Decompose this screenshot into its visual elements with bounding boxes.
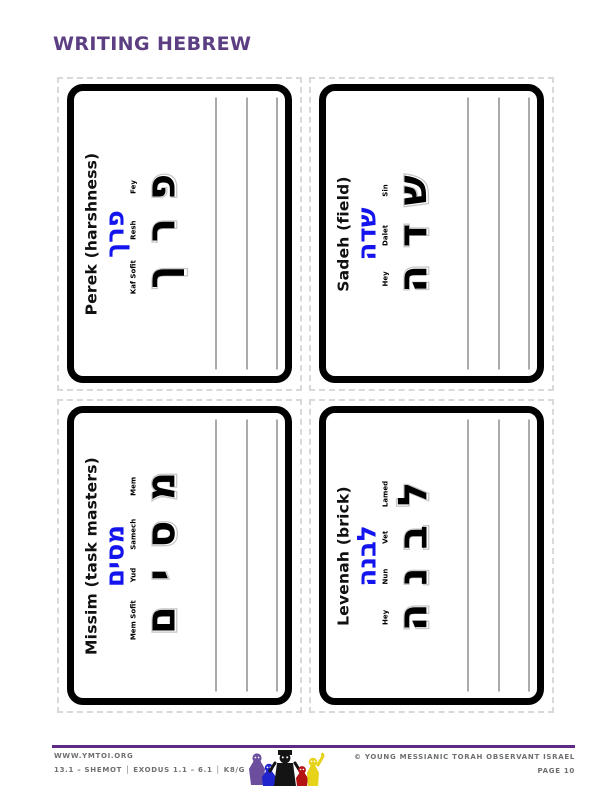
practice-line	[498, 419, 499, 691]
tracing-letters-row: Mem Sofit םם Yud יי Samech סס Mem ממ	[129, 471, 184, 639]
ymtoi-children-logo-icon	[245, 747, 325, 787]
hebrew-word: לבנה	[354, 525, 381, 586]
flashcard-perek: Perek (harshness) פרך Kaf Sofit ךך Resh …	[67, 84, 292, 383]
letter-column: Nun ננ	[381, 567, 436, 585]
footer-lesson-info: 13.1 – SHEMOT │ EXODUS 1.1 – 6.1 │ K8/G	[54, 766, 245, 774]
tracing-letter: יי	[139, 569, 184, 581]
flashcard-cut-area-levenah: Levenah (brick) לבנה Hey הה Nun ננ Vet ב…	[309, 399, 554, 713]
tracing-letter: סס	[139, 520, 184, 547]
tracing-letter: שש	[391, 175, 436, 205]
flashcard-cut-area-sadeh: Sadeh (field) שדה Hey הה Dalet דד Sin שש	[309, 77, 554, 391]
letter-column: Mem Sofit םם	[129, 600, 184, 640]
practice-line	[246, 419, 247, 691]
practice-line	[467, 419, 468, 691]
tracing-letter: דד	[391, 223, 436, 247]
practice-line	[276, 419, 277, 691]
practice-line	[528, 419, 529, 691]
card-label: Levenah (brick)	[334, 486, 352, 626]
practice-line	[276, 97, 277, 369]
letter-column: Lamed לל	[381, 480, 436, 506]
tracing-letters-row: Kaf Sofit ךך Resh רר Fey פפ	[129, 173, 184, 293]
letter-column: Fey פפ	[129, 173, 184, 199]
logo-figure-yellow	[307, 753, 324, 786]
letter-column: Resh רר	[129, 218, 184, 242]
practice-line	[215, 419, 216, 691]
flashcard-levenah: Levenah (brick) לבנה Hey הה Nun ננ Vet ב…	[319, 406, 544, 705]
letter-column: Mem ממ	[129, 471, 184, 500]
flashcard-sadeh: Sadeh (field) שדה Hey הה Dalet דד Sin שש	[319, 84, 544, 383]
flashcard-perek-rotated-content: Perek (harshness) פרך Kaf Sofit ךך Resh …	[74, 91, 285, 376]
flashcard-sadeh-rotated-content: Sadeh (field) שדה Hey הה Dalet דד Sin שש	[326, 91, 537, 376]
card-label: Sadeh (field)	[334, 176, 352, 291]
practice-line	[528, 97, 529, 369]
card-label: Missim (task masters)	[82, 457, 100, 655]
flashcard-missim-rotated-content: Missim (task masters) מסים Mem Sofit םם …	[74, 413, 285, 698]
tracing-letters-row: Hey הה Nun ננ Vet בב Lamed לל	[381, 480, 436, 630]
letter-column: Samech סס	[129, 518, 184, 549]
practice-line	[215, 97, 216, 369]
footer-copyright: © YOUNG MESSIANIC TORAH OBSERVANT ISRAEL	[354, 753, 575, 761]
footer-page-number: PAGE 10	[354, 767, 575, 775]
tracing-letter: םם	[139, 606, 184, 634]
practice-line	[498, 97, 499, 369]
hebrew-word: פרך	[102, 210, 129, 258]
footer-left-block: WWW.YMTOI.ORG 13.1 – SHEMOT │ EXODUS 1.1…	[54, 752, 245, 774]
flashcard-levenah-rotated-content: Levenah (brick) לבנה Hey הה Nun ננ Vet ב…	[326, 413, 537, 698]
flashcard-missim: Missim (task masters) מסים Mem Sofit םם …	[67, 406, 292, 705]
tracing-letter: בב	[391, 525, 436, 549]
tracing-letter: ננ	[391, 567, 436, 585]
flashcard-cut-area-missim: Missim (task masters) מסים Mem Sofit םם …	[57, 399, 302, 713]
footer-right-block: © YOUNG MESSIANIC TORAH OBSERVANT ISRAEL…	[354, 753, 575, 775]
practice-line	[246, 97, 247, 369]
tracing-letters-row: Hey הה Dalet דד Sin שש	[381, 175, 436, 292]
tracing-letter: הה	[391, 265, 436, 292]
letter-column: Yud יי	[129, 567, 184, 582]
hebrew-word: שדה	[354, 207, 381, 260]
letter-column: Hey הה	[381, 603, 436, 630]
tracing-letter: לל	[391, 481, 436, 505]
letter-column: Vet בב	[381, 525, 436, 549]
page-title: WRITING HEBREW	[53, 33, 251, 55]
practice-line	[467, 97, 468, 369]
tracing-letter: רר	[139, 218, 184, 242]
letter-column: Sin שש	[381, 175, 436, 205]
tracing-letter: הה	[391, 603, 436, 630]
hebrew-word: מסים	[102, 524, 129, 586]
tracing-letter: ממ	[139, 471, 184, 500]
letter-column: Kaf Sofit ךך	[129, 260, 184, 294]
letter-column: Hey הה	[381, 265, 436, 292]
card-label: Perek (harshness)	[82, 152, 100, 315]
tracing-letter: פפ	[139, 173, 184, 199]
tracing-letter: ךך	[139, 265, 184, 288]
letter-column: Dalet דד	[381, 223, 436, 247]
footer-website: WWW.YMTOI.ORG	[54, 752, 245, 760]
flashcard-cut-area-perek: Perek (harshness) פרך Kaf Sofit ךך Resh …	[57, 77, 302, 391]
